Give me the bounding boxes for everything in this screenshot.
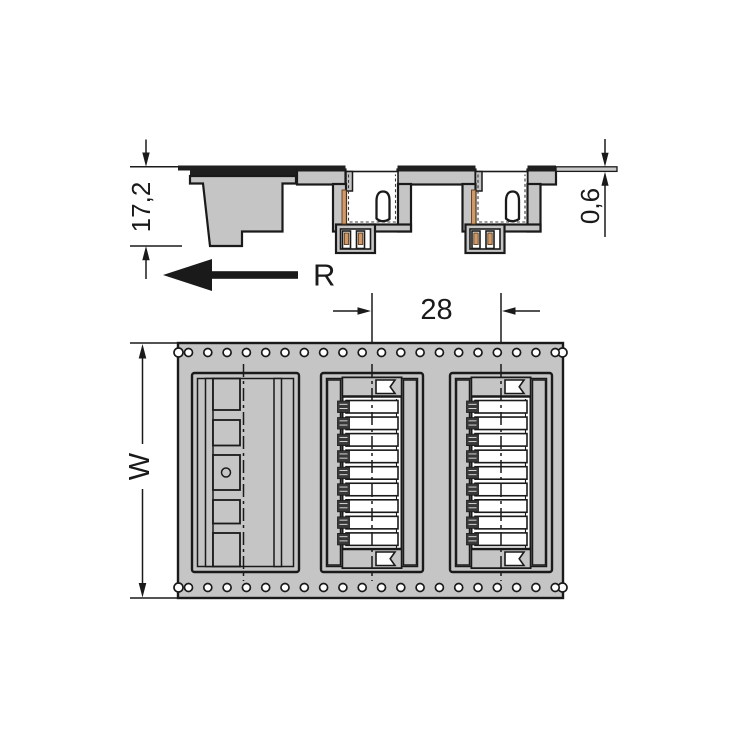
arrowhead-down-icon	[139, 583, 147, 598]
sprocket-hole	[455, 349, 463, 357]
arrow-left-icon	[163, 259, 212, 291]
sprocket-hole	[242, 584, 250, 592]
sprocket-hole	[493, 349, 501, 357]
arrowhead-left-icon	[502, 307, 516, 314]
side-view: 17,2 0,6 R	[126, 139, 617, 293]
reel-direction-label: R	[313, 258, 335, 293]
pocket-cross-section-1	[333, 172, 411, 254]
sprocket-hole	[551, 584, 559, 592]
sprocket-hole	[339, 349, 347, 357]
arrowhead-right-icon	[358, 307, 372, 314]
sprocket-hole	[223, 584, 231, 592]
sprocket-hole	[397, 584, 405, 592]
sprocket-hole	[281, 349, 289, 357]
arrowhead-up-icon	[139, 344, 147, 359]
sprocket-hole	[513, 349, 521, 357]
pocket-cross-section-2	[463, 172, 541, 254]
dimension-w: W	[124, 343, 178, 598]
arrowhead-down-icon	[142, 153, 149, 167]
arrowhead-up-icon	[142, 246, 149, 260]
sprocket-hole	[532, 584, 540, 592]
sprocket-hole	[513, 584, 521, 592]
sprocket-hole	[223, 349, 231, 357]
pocket-empty	[192, 373, 299, 572]
dimension-0-6-label: 0,6	[575, 188, 605, 224]
sprocket-hole	[378, 584, 386, 592]
dimension-17-2-label: 17,2	[126, 182, 156, 233]
dimension-17-2: 17,2	[126, 140, 182, 280]
sprocket-hole	[358, 349, 366, 357]
sprocket-hole	[185, 349, 193, 357]
top-view: W	[124, 343, 567, 598]
sprocket-hole	[339, 584, 347, 592]
sprocket-hole	[185, 584, 193, 592]
pocket-pilot-hole	[222, 468, 231, 477]
sprocket-hole	[204, 584, 212, 592]
sprocket-hole	[493, 584, 501, 592]
sprocket-hole	[300, 584, 308, 592]
sprocket-hole	[416, 584, 424, 592]
sprocket-hole	[242, 349, 250, 357]
sprocket-hole	[320, 584, 328, 592]
sprocket-hole	[378, 349, 386, 357]
sprocket-hole	[262, 584, 270, 592]
arrowhead-up-icon	[601, 172, 608, 186]
sprocket-hole	[551, 349, 559, 357]
arrowhead-down-icon	[601, 153, 608, 167]
sprocket-hole	[435, 349, 443, 357]
sprocket-hole	[416, 349, 424, 357]
sprocket-hole	[435, 584, 443, 592]
sprocket-hole	[300, 349, 308, 357]
sprocket-hole	[474, 349, 482, 357]
component-side-profile	[178, 166, 297, 247]
sprocket-hole	[358, 584, 366, 592]
dimension-28-label: 28	[420, 294, 452, 326]
tape-and-reel-drawing: 17,2 0,6 R 28	[0, 0, 750, 750]
dimension-w-label: W	[124, 452, 156, 480]
sprocket-hole	[320, 349, 328, 357]
sprocket-hole	[532, 349, 540, 357]
sprocket-hole	[262, 349, 270, 357]
sprocket-hole	[204, 349, 212, 357]
sprocket-hole	[474, 584, 482, 592]
technical-drawing-page: 17,2 0,6 R 28	[0, 0, 750, 750]
tape-thin-edge	[556, 167, 617, 172]
reel-direction-arrow: R	[163, 258, 335, 293]
sprocket-hole	[281, 584, 289, 592]
sprocket-hole	[455, 584, 463, 592]
sprocket-hole	[397, 349, 405, 357]
dimension-0-6: 0,6	[575, 139, 609, 237]
